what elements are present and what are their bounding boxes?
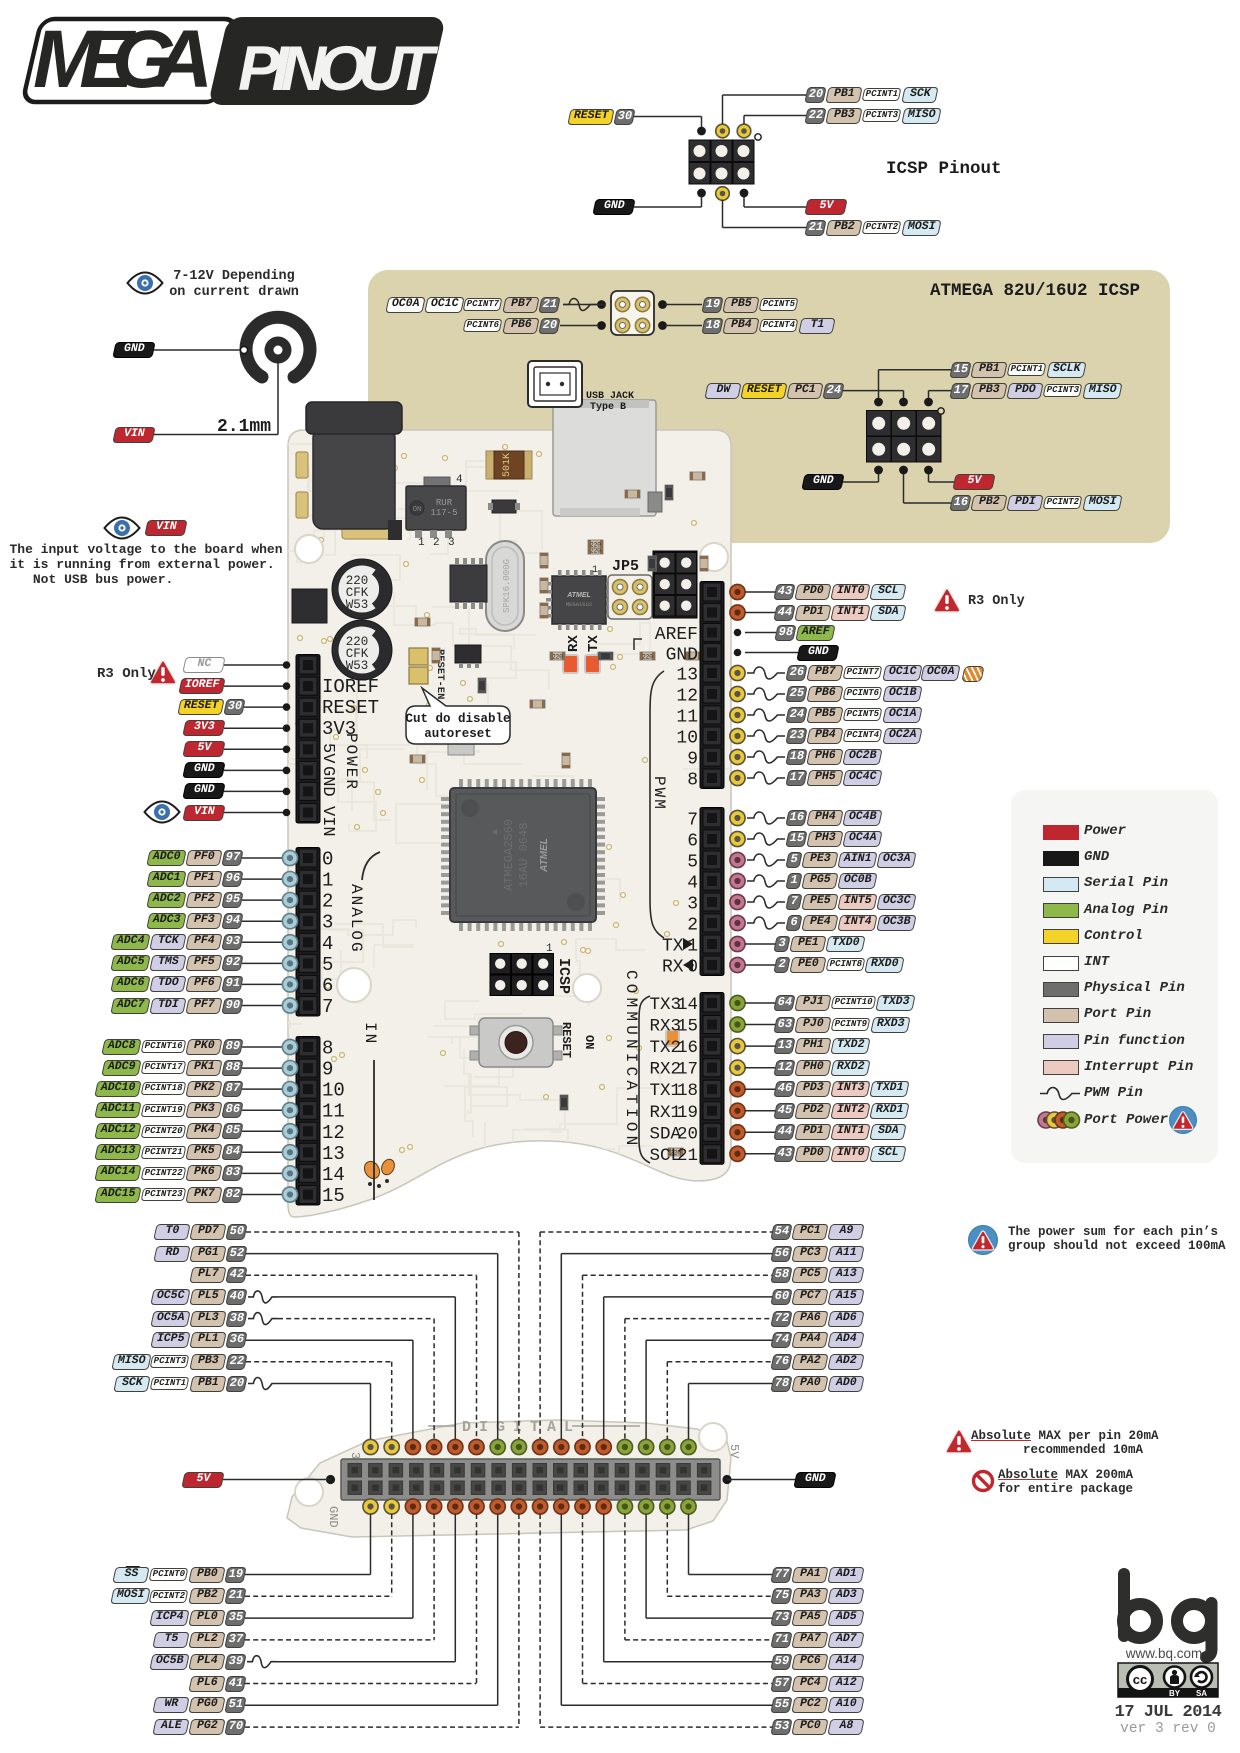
svg-text:2.1mm: 2.1mm bbox=[217, 417, 271, 437]
svg-text:5V: 5V bbox=[318, 743, 337, 764]
svg-text:cc: cc bbox=[1133, 1672, 1147, 1687]
svg-text:4: 4 bbox=[687, 874, 698, 894]
svg-text:IN: IN bbox=[361, 1022, 379, 1045]
svg-text:1: 1 bbox=[592, 565, 598, 576]
svg-text:ATMEL: ATMEL bbox=[539, 838, 550, 873]
svg-text:16AU 0648: 16AU 0648 bbox=[517, 823, 531, 888]
svg-text:21: 21 bbox=[677, 1146, 698, 1166]
svg-text:5: 5 bbox=[322, 954, 333, 976]
svg-text:RX: RX bbox=[566, 635, 582, 652]
svg-text:IOREF: IOREF bbox=[322, 676, 379, 698]
svg-text:ANALOG: ANALOG bbox=[347, 884, 365, 954]
svg-text:www.bq.com: www.bq.com bbox=[1125, 1646, 1203, 1661]
svg-text:6: 6 bbox=[322, 975, 333, 997]
svg-text:17 JUL 2014: 17 JUL 2014 bbox=[1115, 1703, 1222, 1722]
svg-text:GND: GND bbox=[318, 766, 337, 797]
svg-text:0: 0 bbox=[687, 958, 698, 978]
svg-text:ICSP: ICSP bbox=[555, 958, 572, 994]
svg-text:5: 5 bbox=[687, 853, 698, 873]
svg-text:USB JACK: USB JACK bbox=[586, 391, 634, 402]
svg-text:13: 13 bbox=[676, 666, 698, 686]
svg-text:220: 220 bbox=[552, 654, 563, 661]
svg-text:MEGA16U2: MEGA16U2 bbox=[566, 601, 592, 608]
svg-text:10: 10 bbox=[676, 729, 698, 749]
svg-text:POWER: POWER bbox=[342, 733, 360, 791]
svg-text:10: 10 bbox=[322, 1080, 345, 1102]
svg-text:2: 2 bbox=[687, 916, 698, 936]
svg-text:ATMEGA2560: ATMEGA2560 bbox=[502, 819, 516, 891]
svg-text:15: 15 bbox=[677, 1017, 698, 1037]
svg-text:ON: ON bbox=[582, 1035, 596, 1049]
svg-text:SA: SA bbox=[1196, 1689, 1207, 1698]
svg-text:7: 7 bbox=[687, 811, 698, 831]
svg-text:4: 4 bbox=[456, 474, 463, 486]
svg-text:9: 9 bbox=[322, 1059, 333, 1081]
svg-text:AREF: AREF bbox=[655, 625, 698, 645]
svg-text:ON: ON bbox=[413, 506, 421, 514]
svg-text:17: 17 bbox=[677, 1060, 698, 1080]
svg-text:RUR: RUR bbox=[436, 498, 453, 508]
svg-text:1: 1 bbox=[418, 537, 425, 549]
svg-text:8: 8 bbox=[687, 771, 698, 791]
svg-text:SPK16.000G: SPK16.000G bbox=[502, 559, 512, 613]
svg-text:PINOUT: PINOUT bbox=[238, 34, 439, 104]
svg-text:ICSP Pinout: ICSP Pinout bbox=[886, 159, 1002, 179]
svg-text:1: 1 bbox=[322, 870, 333, 892]
svg-text:TX: TX bbox=[586, 635, 602, 652]
svg-text:220: 220 bbox=[590, 542, 601, 549]
svg-text:220: 220 bbox=[590, 548, 601, 555]
svg-text:3: 3 bbox=[348, 1452, 362, 1459]
svg-text:8: 8 bbox=[322, 1038, 333, 1060]
svg-text:0: 0 bbox=[322, 849, 333, 871]
svg-text:RESET: RESET bbox=[559, 1022, 573, 1058]
svg-text:4: 4 bbox=[322, 933, 333, 955]
svg-text:2: 2 bbox=[433, 537, 440, 549]
svg-text:TX: TX bbox=[662, 937, 684, 957]
svg-text:3: 3 bbox=[448, 537, 455, 549]
svg-text:117-5: 117-5 bbox=[430, 508, 457, 518]
svg-text:15: 15 bbox=[322, 1185, 345, 1207]
svg-text:11: 11 bbox=[322, 1101, 345, 1123]
svg-text:3: 3 bbox=[687, 895, 698, 915]
svg-text:MEGA: MEGA bbox=[33, 14, 213, 105]
svg-text:ATMEGA 82U/16U2 ICSP: ATMEGA 82U/16U2 ICSP bbox=[930, 281, 1140, 301]
svg-text:W53: W53 bbox=[346, 598, 369, 612]
svg-text:ver 3 rev 0: ver 3 rev 0 bbox=[1120, 1721, 1216, 1737]
svg-text:6: 6 bbox=[687, 832, 698, 852]
svg-text:501K: 501K bbox=[502, 453, 513, 477]
svg-text:GND: GND bbox=[326, 1506, 340, 1528]
svg-text:Type B: Type B bbox=[590, 402, 626, 413]
svg-text:13: 13 bbox=[322, 1143, 345, 1165]
svg-text:2: 2 bbox=[322, 891, 333, 913]
svg-text:1: 1 bbox=[687, 937, 698, 957]
svg-text:11: 11 bbox=[676, 708, 698, 728]
svg-text:BY: BY bbox=[1169, 1689, 1181, 1698]
svg-text:9: 9 bbox=[687, 750, 698, 770]
svg-text:1: 1 bbox=[546, 943, 553, 955]
svg-text:20: 20 bbox=[677, 1124, 698, 1144]
svg-text:PWM: PWM bbox=[650, 776, 668, 811]
svg-text:autoreset: autoreset bbox=[424, 727, 492, 741]
svg-text:DIGITAL: DIGITAL bbox=[462, 1419, 581, 1436]
svg-text:220: 220 bbox=[642, 654, 653, 661]
svg-text:19: 19 bbox=[677, 1103, 698, 1123]
svg-text:7: 7 bbox=[322, 996, 333, 1018]
svg-text:▲: ▲ bbox=[489, 828, 499, 837]
svg-text:3: 3 bbox=[322, 912, 333, 934]
svg-text:14: 14 bbox=[322, 1164, 345, 1186]
svg-text:GND: GND bbox=[666, 646, 698, 666]
svg-text:18: 18 bbox=[677, 1081, 698, 1101]
svg-text:ATMEL: ATMEL bbox=[566, 592, 591, 599]
svg-text:12: 12 bbox=[322, 1122, 345, 1144]
svg-text:5V: 5V bbox=[727, 1444, 741, 1459]
svg-text:JP5: JP5 bbox=[612, 558, 639, 575]
svg-text:14: 14 bbox=[677, 995, 698, 1015]
svg-text:VIN: VIN bbox=[318, 806, 337, 837]
svg-text:12: 12 bbox=[676, 687, 698, 707]
svg-text:Cut do disable: Cut do disable bbox=[405, 712, 510, 726]
svg-text:RX: RX bbox=[662, 958, 684, 978]
svg-text:16: 16 bbox=[677, 1038, 698, 1058]
svg-text:COMMUNICATION: COMMUNICATION bbox=[622, 970, 640, 1149]
svg-text:RESET: RESET bbox=[322, 697, 379, 719]
svg-text:W53: W53 bbox=[346, 659, 369, 673]
